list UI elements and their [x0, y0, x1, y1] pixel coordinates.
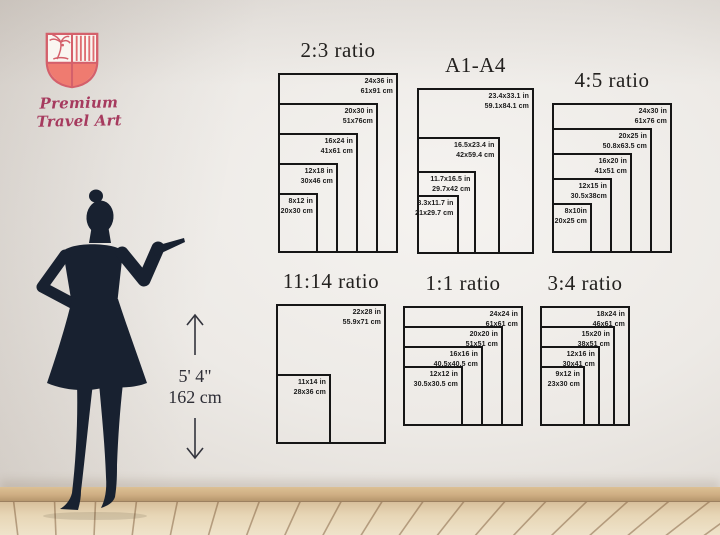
size-label: 16x20 in41x51 cm: [595, 157, 627, 177]
size-label-in: 11.7x16.5 in: [430, 175, 470, 185]
up-arrow-icon: [182, 311, 208, 355]
diagram-title: 4:5 ratio: [574, 67, 649, 93]
size-label: 8x10in20x25 cm: [555, 207, 587, 227]
size-label-cm: 51x76cm: [343, 117, 373, 127]
size-label-cm: 61x76 cm: [635, 117, 667, 127]
size-label: 8.3x11.7 in21x29.7 cm: [415, 199, 453, 219]
diagram-ratio-2-3: 2:3 ratio24x36 in61x91 cm20x30 in51x76cm…: [278, 37, 398, 253]
size-box: 12x12 in30.5x30.5 cm: [403, 366, 463, 426]
size-label-in: 12x16 in: [563, 350, 595, 360]
size-label: 12x12 in30.5x30.5 cm: [414, 370, 458, 390]
size-box: 8x12 in20x30 cm: [278, 193, 318, 253]
size-label: 16x24 in41x61 cm: [321, 137, 353, 157]
brand-name: Premium Travel Art: [14, 93, 145, 131]
size-label-cm: 41x61 cm: [321, 147, 353, 157]
size-label: 12x18 in30x46 cm: [301, 167, 333, 187]
size-label-cm: 59.1x84.1 cm: [485, 102, 529, 112]
size-frame: 22x28 in55.9x71 cm11x14 in28x36 cm: [276, 304, 386, 444]
diagram-ratio-1-1: 1:1 ratio24x24 in61x61 cm20x20 in51x51 c…: [403, 270, 523, 426]
size-label-in: 9x12 in: [548, 370, 580, 380]
size-label-cm: 28x36 cm: [294, 388, 326, 398]
down-arrow-icon: [182, 418, 208, 462]
size-label-in: 8.3x11.7 in: [415, 199, 453, 209]
size-frame: 24x24 in61x61 cm20x20 in51x51 cm16x16 in…: [403, 306, 523, 426]
size-label-cm: 30.5x30.5 cm: [414, 380, 458, 390]
size-label-cm: 55.9x71 cm: [343, 318, 381, 328]
size-label-in: 15x20 in: [578, 330, 610, 340]
size-label: 16.5x23.4 in42x59.4 cm: [454, 141, 495, 161]
size-label-in: 24x36 in: [361, 77, 393, 87]
size-label-cm: 20x25 cm: [555, 217, 587, 227]
size-label-in: 16x20 in: [595, 157, 627, 167]
shield-logo-icon: [44, 31, 100, 89]
size-label-in: 20x20 in: [466, 330, 498, 340]
size-label-in: 12x12 in: [414, 370, 458, 380]
size-label-cm: 21x29.7 cm: [415, 209, 453, 219]
size-label-in: 22x28 in: [343, 308, 381, 318]
size-label-in: 20x30 in: [343, 107, 373, 117]
diagram-a1-a4: A1-A423.4x33.1 in59.1x84.1 cm16.5x23.4 i…: [417, 52, 534, 254]
diagram-title: 1:1 ratio: [425, 270, 500, 296]
size-label-cm: 30.5x38cm: [571, 192, 607, 202]
diagram-title: A1-A4: [445, 52, 506, 78]
diagram-ratio-4-5: 4:5 ratio24x30 in61x76 cm20x25 in50.8x63…: [552, 67, 672, 253]
poster-size-guide: Premium Travel Art 5' 4" 162 cm: [0, 0, 720, 535]
size-label-cm: 41x51 cm: [595, 167, 627, 177]
size-frame: 24x30 in61x76 cm20x25 in50.8x63.5 cm16x2…: [552, 103, 672, 253]
size-label: 24x36 in61x91 cm: [361, 77, 393, 97]
size-label: 11x14 in28x36 cm: [294, 378, 326, 398]
size-frame: 18x24 in46x61 cm15x20 in38x51 cm12x16 in…: [540, 306, 630, 426]
size-label: 20x30 in51x76cm: [343, 107, 373, 127]
height-imperial: 5' 4": [155, 366, 235, 387]
size-label-in: 12x15 in: [571, 182, 607, 192]
size-label: 9x12 in23x30 cm: [548, 370, 580, 390]
diagram-title: 2:3 ratio: [300, 37, 375, 63]
size-frame: 23.4x33.1 in59.1x84.1 cm16.5x23.4 in42x5…: [417, 88, 534, 254]
diagram-ratio-3-4: 3:4 ratio18x24 in46x61 cm15x20 in38x51 c…: [540, 270, 630, 426]
size-label-in: 16.5x23.4 in: [454, 141, 495, 151]
size-label-cm: 50.8x63.5 cm: [603, 142, 647, 152]
size-label-in: 11x14 in: [294, 378, 326, 388]
size-label: 20x25 in50.8x63.5 cm: [603, 132, 647, 152]
size-box: 9x12 in23x30 cm: [540, 366, 585, 426]
size-frame: 24x36 in61x91 cm20x30 in51x76cm16x24 in4…: [278, 73, 398, 253]
size-label-in: 24x24 in: [486, 310, 518, 320]
size-label: 22x28 in55.9x71 cm: [343, 308, 381, 328]
diagram-title: 3:4 ratio: [547, 270, 622, 296]
size-label-cm: 30x46 cm: [301, 177, 333, 187]
size-label-in: 8x10in: [555, 207, 587, 217]
size-box: 8x10in20x25 cm: [552, 203, 592, 253]
size-label-in: 18x24 in: [593, 310, 625, 320]
diagram-ratio-11-14: 11:14 ratio22x28 in55.9x71 cm11x14 in28x…: [276, 268, 386, 444]
size-box: 11x14 in28x36 cm: [276, 374, 331, 444]
size-label-cm: 61x91 cm: [361, 87, 393, 97]
size-label-in: 8x12 in: [281, 197, 313, 207]
size-label-in: 12x18 in: [301, 167, 333, 177]
size-label-in: 23.4x33.1 in: [485, 92, 529, 102]
diagram-title: 11:14 ratio: [283, 268, 379, 294]
size-label: 24x30 in61x76 cm: [635, 107, 667, 127]
size-label-cm: 20x30 cm: [281, 207, 313, 217]
size-label: 23.4x33.1 in59.1x84.1 cm: [485, 92, 529, 112]
height-measurement: 5' 4" 162 cm: [155, 311, 235, 462]
size-label: 12x15 in30.5x38cm: [571, 182, 607, 202]
size-label-cm: 23x30 cm: [548, 380, 580, 390]
size-label: 11.7x16.5 in29.7x42 cm: [430, 175, 470, 195]
size-label: 8x12 in20x30 cm: [281, 197, 313, 217]
size-label-in: 16x16 in: [434, 350, 478, 360]
size-label-cm: 29.7x42 cm: [430, 185, 470, 195]
brand-logo: Premium Travel Art: [0, 0, 170, 130]
size-label-cm: 42x59.4 cm: [454, 151, 495, 161]
size-label-in: 16x24 in: [321, 137, 353, 147]
size-label-in: 24x30 in: [635, 107, 667, 117]
size-box: 8.3x11.7 in21x29.7 cm: [417, 195, 459, 254]
size-label-in: 20x25 in: [603, 132, 647, 142]
height-metric: 162 cm: [155, 387, 235, 408]
